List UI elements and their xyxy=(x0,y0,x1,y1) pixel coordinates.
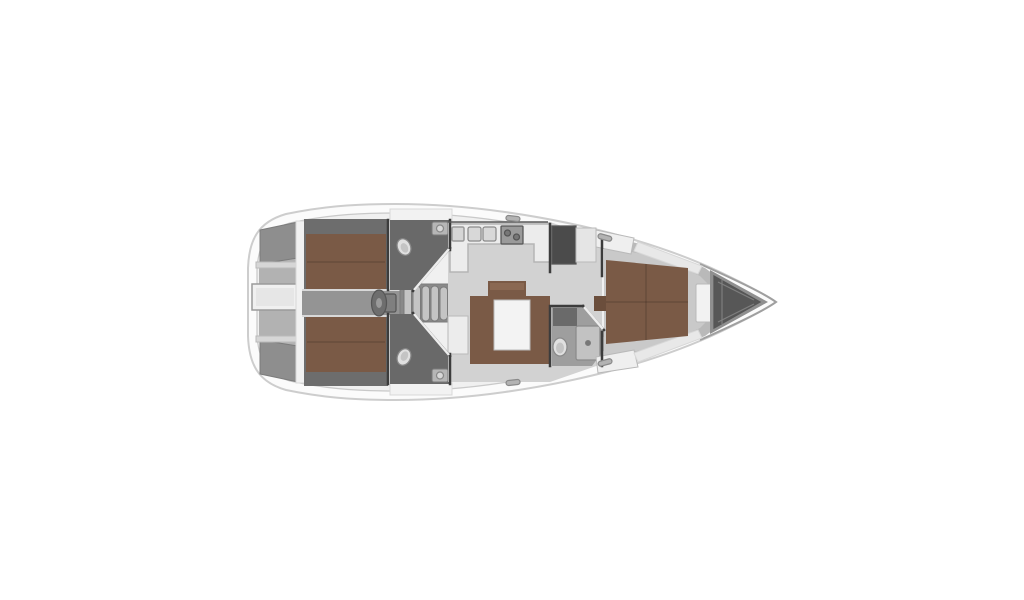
stern-shelf-starboard xyxy=(256,336,300,342)
galley-tray xyxy=(452,227,464,241)
basin-bowl xyxy=(437,225,444,232)
stove-burner xyxy=(505,230,511,236)
galley-stove xyxy=(501,226,523,244)
galley-sink-1 xyxy=(468,227,481,241)
nightstand xyxy=(594,296,606,311)
toilet-seat xyxy=(556,343,564,354)
stern-shelf-port xyxy=(256,262,300,268)
salon-chaise xyxy=(448,316,468,354)
step-rib xyxy=(422,286,430,321)
floorplan-svg xyxy=(0,0,1024,600)
salon-table xyxy=(494,300,530,350)
coachroof-port xyxy=(390,209,452,221)
salon-bench-top xyxy=(490,283,524,290)
step-rib xyxy=(431,286,439,321)
helm-seat-port xyxy=(260,222,298,264)
forward-head-cabinet xyxy=(553,308,577,326)
shower-drain xyxy=(586,341,591,346)
wheel-hub xyxy=(376,298,382,308)
step-rib xyxy=(440,287,448,320)
helm-seat-starboard xyxy=(260,340,298,382)
navigation-cabinet xyxy=(552,226,576,264)
swim-platform-inner xyxy=(256,288,294,306)
basin-bowl xyxy=(437,372,444,379)
stove-burner xyxy=(514,234,520,240)
aft-berth-starboard xyxy=(306,317,386,372)
galley-sink-2 xyxy=(483,227,496,241)
yacht-floorplan-image xyxy=(0,0,1024,600)
chart-locker xyxy=(576,228,596,262)
deck-cleat xyxy=(506,215,520,221)
coachroof-starboard xyxy=(390,383,452,395)
deck-cleat xyxy=(506,379,520,385)
